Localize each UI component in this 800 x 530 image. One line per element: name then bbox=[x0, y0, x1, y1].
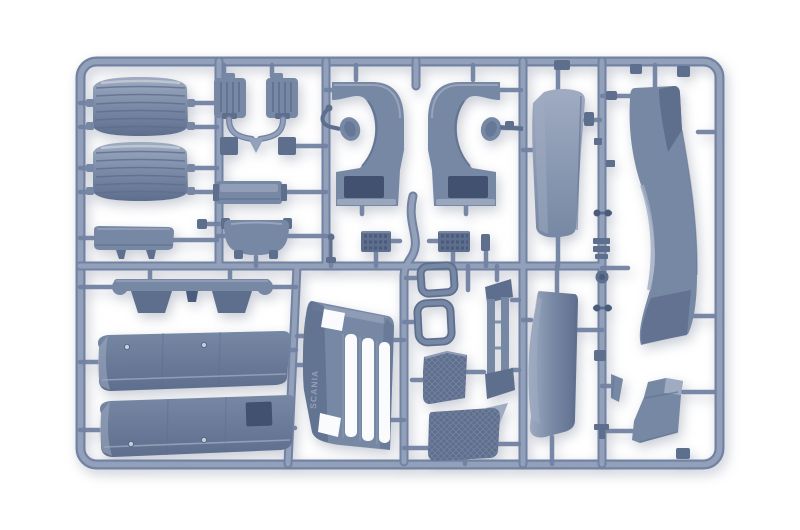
tread-plate-large bbox=[428, 403, 508, 461]
side-skirt-upper bbox=[98, 331, 291, 391]
cab-side-blade bbox=[532, 89, 585, 237]
small-fitting bbox=[197, 219, 207, 229]
vent-bracket-right bbox=[266, 73, 298, 119]
small-fitting bbox=[594, 138, 602, 145]
radiator-core-right bbox=[438, 231, 470, 252]
small-fitting bbox=[594, 350, 606, 361]
small-fitting bbox=[584, 112, 594, 126]
tread-plate-small bbox=[423, 351, 467, 404]
sprue-illustration: Plastic model kit sprue moulded in blue-… bbox=[0, 0, 800, 530]
small-fitting bbox=[677, 66, 690, 77]
bunk-shelf bbox=[213, 181, 287, 204]
small-fitting bbox=[676, 448, 690, 459]
vent-bracket-left bbox=[214, 73, 246, 119]
small-fitting bbox=[595, 254, 608, 259]
product-photo: Plastic model kit sprue moulded in blue-… bbox=[0, 0, 800, 530]
roof-hatch-panel-upper bbox=[86, 77, 195, 136]
small-fitting bbox=[593, 238, 610, 244]
small-fitting bbox=[599, 274, 605, 280]
radiator-core-left bbox=[361, 231, 391, 252]
small-fitting bbox=[594, 424, 609, 430]
small-fitting bbox=[594, 305, 601, 312]
small-fitting bbox=[599, 430, 605, 439]
side-deflector-panel bbox=[529, 291, 578, 437]
small-fitting bbox=[605, 210, 612, 217]
small-fitting bbox=[630, 64, 642, 74]
grille-molded-brand: SCANIA bbox=[308, 369, 320, 409]
small-fitting bbox=[594, 210, 601, 217]
small-fitting bbox=[606, 160, 615, 167]
small-fitting bbox=[481, 234, 490, 251]
small-fitting bbox=[593, 246, 610, 252]
small-fitting bbox=[605, 305, 612, 312]
roof-hatch-panel-lower bbox=[86, 142, 195, 201]
small-fitting bbox=[554, 60, 570, 70]
side-skirt-lower bbox=[100, 395, 295, 457]
front-grille-panel: SCANIA bbox=[303, 301, 394, 450]
small-fitting bbox=[606, 91, 617, 100]
